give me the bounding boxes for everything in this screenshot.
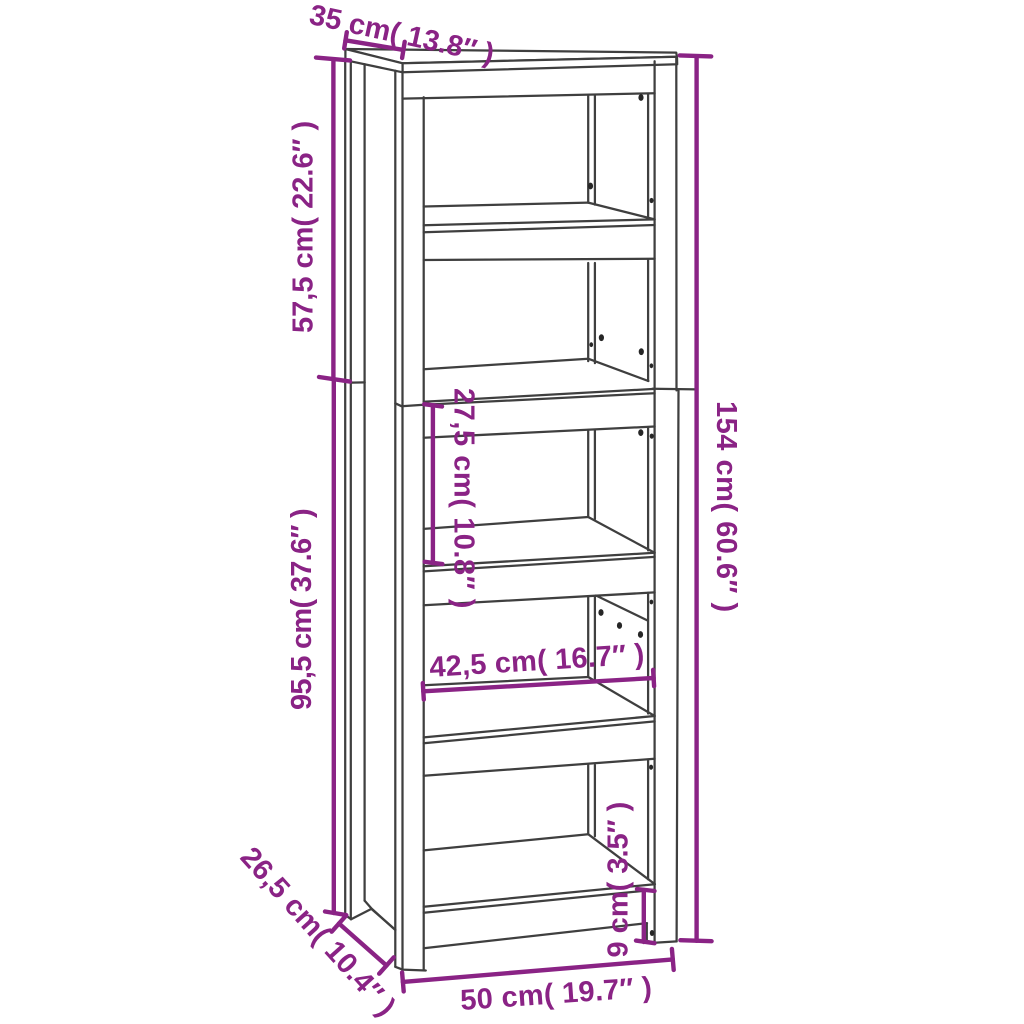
svg-text:57,5 cm( 22.6″ ): 57,5 cm( 22.6″ ) [288,121,320,333]
svg-text:154 cm( 60.6″ ): 154 cm( 60.6″ ) [710,401,742,613]
svg-text:95,5 cm( 37.6″ ): 95,5 cm( 37.6″ ) [286,509,318,710]
svg-text:27,5 cm( 10.8″ ): 27,5 cm( 10.8″ ) [448,388,480,609]
svg-text:9 cm( 3.5″ ): 9 cm( 3.5″ ) [603,802,635,958]
